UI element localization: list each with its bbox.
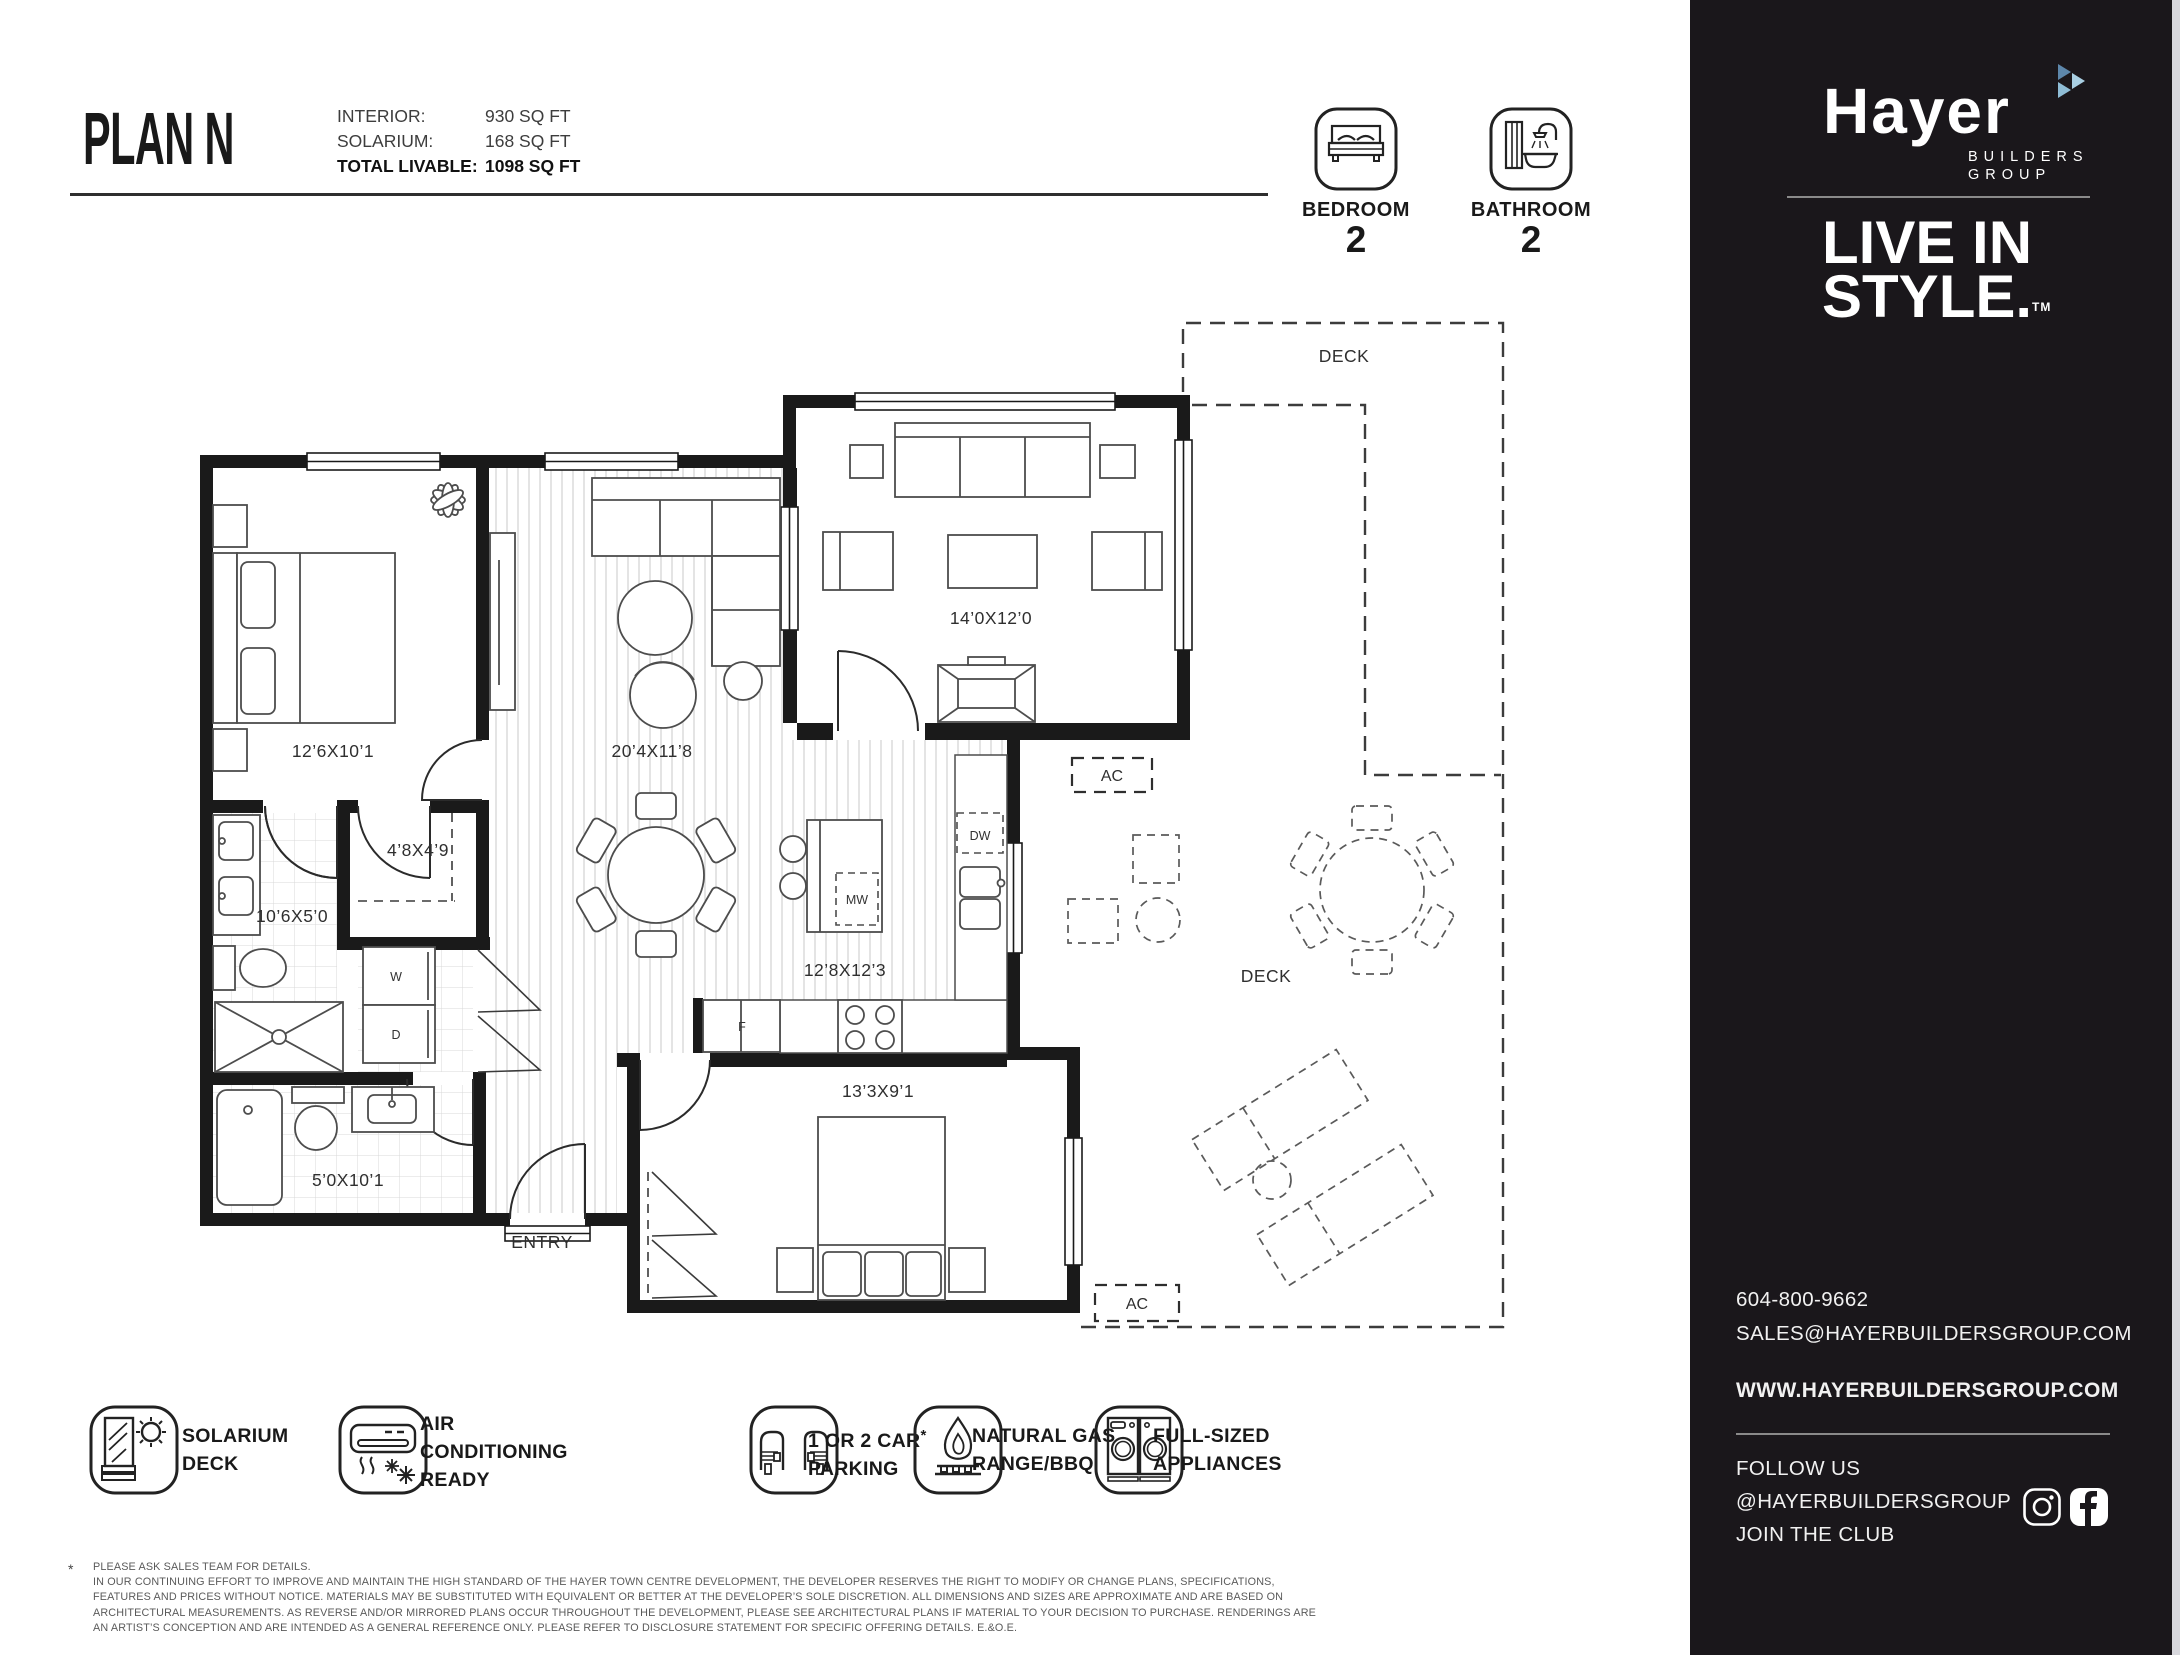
kitchen-counter-right [955, 755, 1007, 1000]
solarium-deck-icon [88, 1404, 180, 1496]
nightstand [213, 729, 247, 771]
stat-bedroom: BEDROOM 2 [1271, 107, 1441, 258]
room-dims-bedroom1: 12’6X10’1 [292, 741, 374, 761]
room-dims-living: 20’4X11’8 [611, 741, 692, 761]
air-conditioning-icon [337, 1404, 429, 1496]
feature-solarium-deck [88, 1404, 180, 1501]
deck-lounger [1192, 1050, 1368, 1191]
feature-line: PARKING [808, 1455, 927, 1483]
feature-line: READY [420, 1466, 568, 1494]
brand-logo: Hayer [1823, 74, 2011, 148]
accent-chair [630, 662, 696, 728]
fridge-label: F [738, 1020, 746, 1034]
bed-second [818, 1117, 945, 1300]
ensuite-vanity [213, 815, 260, 935]
feature-line: AIR [420, 1410, 568, 1438]
feature-line: 1 OR 2 CAR [808, 1430, 920, 1452]
feature-line: DECK [182, 1450, 288, 1478]
solarium-sofa [895, 423, 1090, 497]
spec-value: 930 SQ FT [485, 104, 571, 129]
disclaimer-note: PLEASE ASK SALES TEAM FOR DETAILS. [93, 1560, 1316, 1575]
deck-label-mid: DECK [1241, 966, 1292, 986]
room-dims-bath2: 5’0X10’1 [312, 1170, 384, 1190]
stat-count: 2 [1271, 222, 1441, 258]
sidebar-divider-top [1787, 196, 2090, 198]
side-table [850, 445, 883, 478]
spec-row-total: TOTAL LIVABLE: 1098 SQ FT [337, 154, 580, 179]
feature-label-appliances: FULL-SIZED APPLIANCES [1153, 1422, 1282, 1478]
page-edge-strip [2172, 0, 2180, 1655]
feature-line: SOLARIUM [182, 1422, 288, 1450]
side-table [1100, 445, 1135, 478]
disclaimer-line: ARCHITECTURAL MEASUREMENTS. AS REVERSE A… [93, 1606, 1316, 1621]
disclaimer-block: PLEASE ASK SALES TEAM FOR DETAILS. IN OU… [93, 1560, 1316, 1636]
bathtub-icon [1489, 107, 1573, 191]
toilet [213, 946, 286, 990]
spec-row-solarium: SOLARIUM: 168 SQ FT [337, 129, 580, 154]
brand-triangles-icon [2054, 62, 2090, 102]
social-handle: @HAYERBUILDERSGROUP [1736, 1485, 2011, 1518]
nightstand [213, 505, 247, 547]
trademark: TM [2032, 300, 2051, 314]
armchair [823, 532, 893, 590]
tv-stand [938, 657, 1035, 722]
tagline-line: LIVE IN [1822, 216, 2051, 270]
spec-row-interior: INTERIOR: 930 SQ FT [337, 104, 580, 129]
disclaimer-line: IN OUR CONTINUING EFFORT TO IMPROVE AND … [93, 1575, 1316, 1590]
brand-subtitle: BUILDERS GROUP [1968, 148, 2089, 184]
feature-air-conditioning [337, 1404, 429, 1501]
tagline: LIVE IN STYLE.TM [1822, 216, 2051, 334]
armchair [1092, 532, 1162, 590]
plant [430, 482, 465, 517]
room-dims-ensuite: 10’6X5’0 [256, 906, 328, 926]
floorplan-brochure-page: { "header": { "plan_title": "PLAN N", "s… [0, 0, 2180, 1655]
footnote-asterisk: * [68, 1562, 74, 1577]
nightstand [949, 1248, 985, 1292]
deck-label-top: DECK [1319, 346, 1370, 366]
spec-table: INTERIOR: 930 SQ FT SOLARIUM: 168 SQ FT … [337, 104, 580, 179]
tv-console [490, 533, 515, 710]
feature-label-solarium-deck: SOLARIUM DECK [182, 1422, 288, 1478]
range [838, 1000, 902, 1053]
brand-sub-line: GROUP [1968, 166, 2089, 184]
ottoman [618, 581, 692, 655]
sidebar-divider-bottom [1736, 1433, 2110, 1435]
facebook-icon[interactable] [2070, 1488, 2108, 1526]
follow-block: FOLLOW US @HAYERBUILDERSGROUP JOIN THE C… [1736, 1452, 2011, 1551]
email-link[interactable]: SALES@HAYERBUILDERSGROUP.COM [1736, 1322, 2132, 1346]
nightstand [777, 1248, 813, 1292]
page-title: PLAN N [83, 100, 234, 178]
bed-master [213, 553, 395, 723]
washer-dryer [363, 947, 435, 1063]
room-dims-kitchen: 12’8X12’3 [804, 960, 886, 980]
bed-icon [1314, 107, 1398, 191]
dryer-label: D [391, 1028, 400, 1042]
dishwasher-label: DW [970, 829, 991, 843]
ac-label-bottom: AC [1126, 1296, 1148, 1313]
website-link[interactable]: WWW.HAYERBUILDERSGROUP.COM [1736, 1379, 2119, 1403]
disclaimer-line: AN ARTIST’S CONCEPTION AND ARE INTENDED … [93, 1621, 1316, 1636]
instagram-icon[interactable] [2023, 1488, 2061, 1526]
spec-label: TOTAL LIVABLE: [337, 154, 485, 179]
stat-bathroom: BATHROOM 2 [1446, 107, 1616, 258]
ac-label-top: AC [1101, 768, 1123, 785]
spec-value: 168 SQ FT [485, 129, 571, 154]
feature-label-air-conditioning: AIR CONDITIONING READY [420, 1410, 568, 1494]
follow-line: FOLLOW US [1736, 1452, 2011, 1485]
follow-line: JOIN THE CLUB [1736, 1518, 2011, 1551]
spec-label: INTERIOR: [337, 104, 485, 129]
feature-line: FULL-SIZED [1153, 1422, 1282, 1450]
feature-line: CONDITIONING [420, 1438, 568, 1466]
brand-sub-line: BUILDERS [1968, 148, 2089, 166]
feature-label-parking: 1 OR 2 CAR* PARKING [808, 1422, 927, 1483]
coffee-table [948, 535, 1037, 588]
deck-furniture [1068, 806, 1455, 1285]
room-dims-solarium: 14’0X12’0 [950, 608, 1032, 628]
ac-units [1072, 758, 1179, 1321]
washer-label: W [390, 970, 402, 984]
stat-count: 2 [1446, 222, 1616, 258]
room-dims-walkin: 4’8X4’9 [387, 840, 449, 860]
side-table [724, 662, 762, 700]
phone-number[interactable]: 604-800-9662 [1736, 1288, 1868, 1312]
bathtub [217, 1090, 282, 1205]
spec-value: 1098 SQ FT [485, 154, 580, 179]
bath2-vanity [352, 1087, 434, 1132]
spec-label: SOLARIUM: [337, 129, 485, 154]
shower [215, 1002, 343, 1072]
feature-line: APPLIANCES [1153, 1450, 1282, 1478]
header-divider [70, 193, 1268, 196]
entry-label: ENTRY [511, 1232, 573, 1252]
disclaimer-line: FEATURES AND PRICES WITHOUT NOTICE. MATE… [93, 1590, 1316, 1605]
room-dims-bedroom2: 13’3X9’1 [842, 1081, 914, 1101]
microwave-label: MW [846, 893, 868, 907]
tagline-line: STYLE. [1822, 263, 2032, 330]
